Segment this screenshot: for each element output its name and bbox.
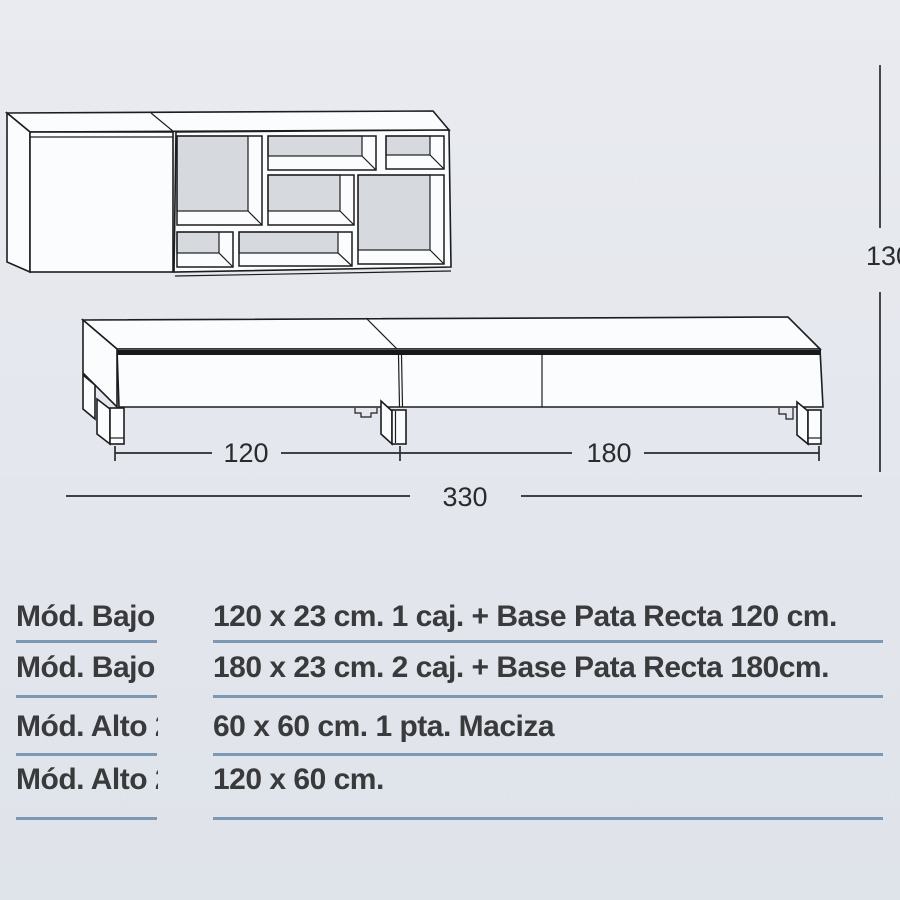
wall-cabinet-drawing: [7, 111, 451, 276]
leg-front-left-side: [97, 399, 110, 444]
separator: [213, 817, 883, 820]
dimension-label-total-width: 330: [442, 482, 487, 512]
compartment-back-middle-square: [268, 175, 340, 211]
compartment-back-top-middle: [268, 136, 362, 156]
separator: [16, 817, 157, 820]
leg-right-side: [797, 402, 808, 444]
module-label: Mód. Bajo: [16, 600, 158, 634]
dimension-label-left-module: 120: [223, 438, 268, 468]
leg-middle: [392, 410, 406, 444]
table-row: Mód. Alto 2 60 x 60 cm. 1 pta. Maciza: [0, 710, 900, 744]
cabinet-top-face: [7, 111, 449, 132]
cabinet-door: [30, 132, 173, 272]
compartment-back-top-right: [386, 136, 430, 155]
module-spec: 180 x 23 cm. 2 caj. + Base Pata Recta 18…: [213, 651, 900, 685]
tv-bench-drawing: [83, 317, 823, 444]
module-spec: 120 x 23 cm. 1 caj. + Base Pata Recta 12…: [213, 600, 900, 634]
module-spec: 120 x 60 cm.: [213, 763, 900, 797]
compartment-back-bottom-left: [177, 232, 219, 253]
glide-middle: [355, 408, 377, 417]
separator: [213, 753, 883, 756]
separator: [16, 640, 157, 643]
bench-top-face: [83, 317, 820, 349]
module-label: Mód. Alto 2: [16, 710, 158, 744]
furniture-spec-sheet: 120 180 330 130 Mód. Bajo 120 x 23 cm. 1…: [0, 0, 900, 900]
table-row: Mód. Alto 2 120 x 60 cm.: [0, 763, 900, 797]
dimension-label-right-module: 180: [586, 438, 631, 468]
dimension-line-modules: [115, 446, 819, 461]
separator: [213, 695, 883, 698]
glide-right: [779, 408, 793, 419]
separator: [16, 695, 157, 698]
module-spec: 60 x 60 cm. 1 pta. Maciza: [213, 710, 900, 744]
module-label: Mód. Bajo: [16, 651, 158, 685]
dimension-label-total-height: 130: [866, 241, 900, 271]
table-row: Mód. Bajo 180 x 23 cm. 2 caj. + Base Pat…: [0, 651, 900, 685]
compartment-back-bottom-middle: [239, 232, 338, 253]
compartment-back-right-big: [358, 175, 430, 250]
compartment-back-big-left: [177, 136, 248, 211]
separator: [213, 640, 883, 643]
cabinet-left-side: [7, 113, 30, 272]
leg-right: [808, 410, 821, 444]
separator: [16, 753, 157, 756]
bench-front-face: [117, 349, 823, 407]
module-label: Mód. Alto 2: [16, 763, 158, 797]
table-row: Mód. Bajo 120 x 23 cm. 1 caj. + Base Pat…: [0, 600, 900, 634]
